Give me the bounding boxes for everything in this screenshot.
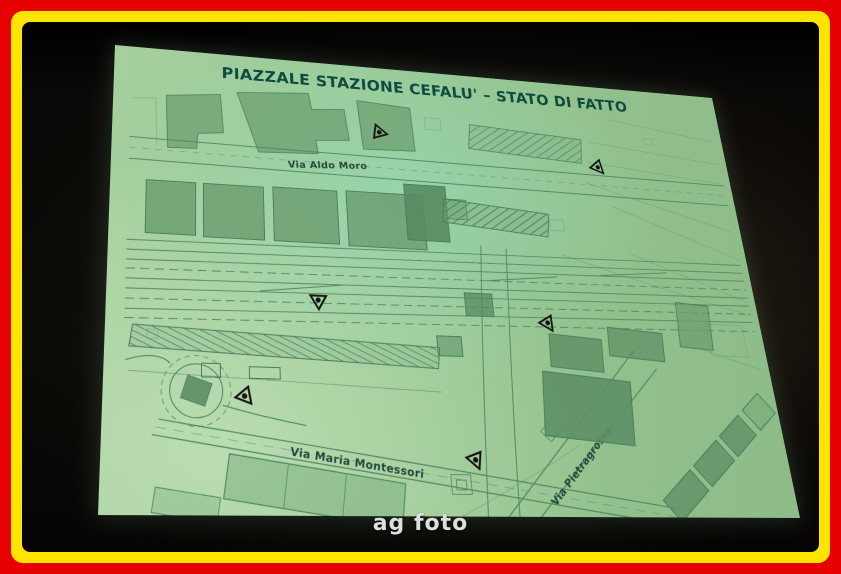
viewpoint-marker	[466, 452, 486, 472]
viewpoint-marker	[539, 312, 557, 331]
corner-buildings	[663, 393, 775, 518]
platform-building	[128, 324, 444, 392]
center-road	[430, 243, 537, 517]
projection-photo: Via Aldo Moro	[22, 22, 819, 552]
railway-tracks	[124, 231, 756, 342]
photo-frame: Via Aldo Moro	[0, 0, 841, 574]
southeast-building	[543, 371, 636, 446]
street-label-aldo-moro: Via Aldo Moro	[287, 160, 368, 172]
background-parcel-lines	[121, 80, 793, 517]
watermark: ag foto	[373, 511, 469, 536]
viewpoint-marker	[234, 387, 251, 406]
projected-slide: Via Aldo Moro	[98, 45, 800, 518]
roundabout	[123, 353, 306, 429]
east-buildings	[546, 287, 718, 385]
viewpoint-marker	[307, 289, 326, 310]
